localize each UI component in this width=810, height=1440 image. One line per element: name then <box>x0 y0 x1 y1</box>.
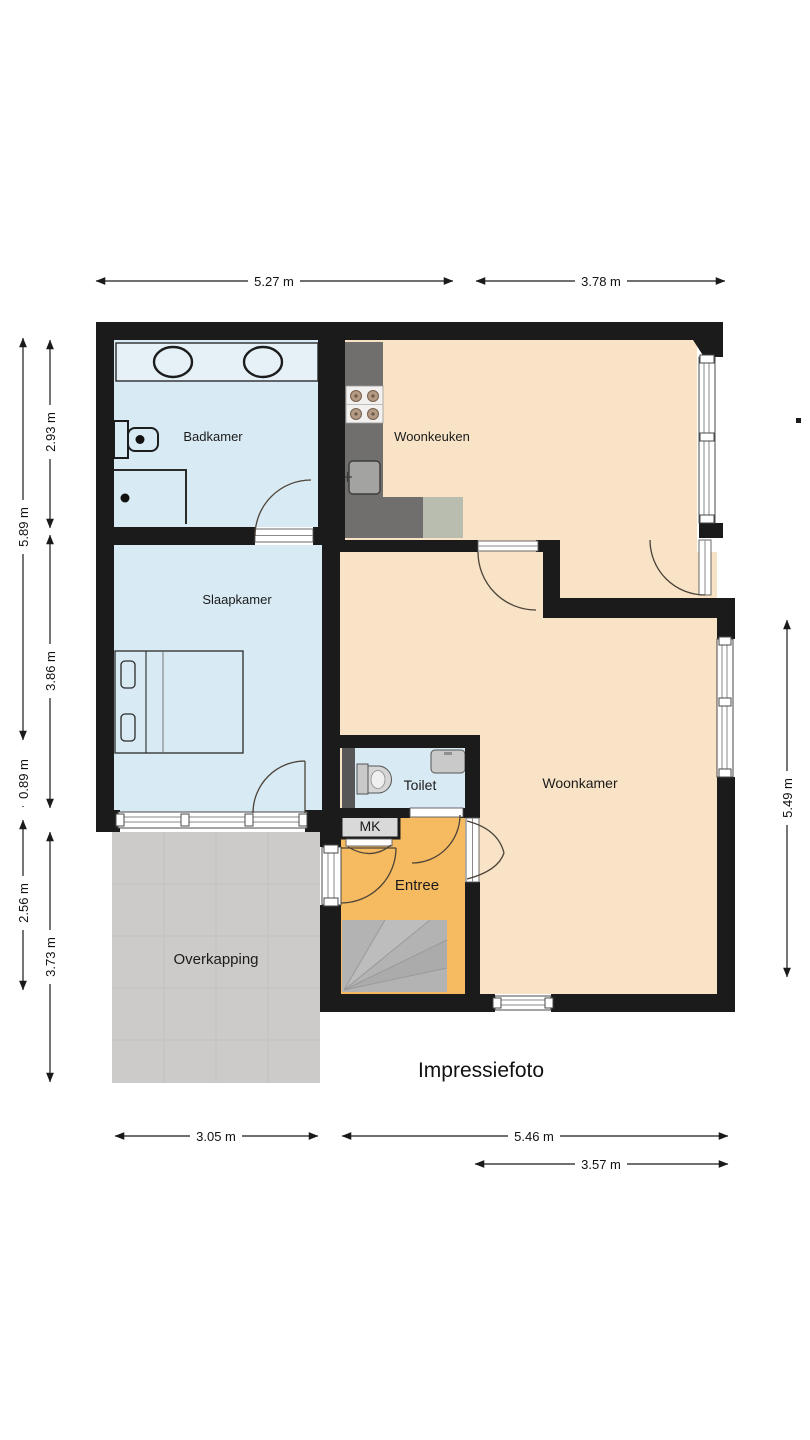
caption-impressiefoto: Impressiefoto <box>418 1059 544 1082</box>
woonkamer-bottom-window <box>493 996 553 1010</box>
wall-corner-tr <box>693 340 723 357</box>
dim-top-right-value: 3.78 m <box>581 274 621 289</box>
dim-left-outer-middle-value: 0.89 m <box>16 759 31 799</box>
dim-right-side: 5.49 m <box>779 620 795 977</box>
label-toilet: Toilet <box>404 777 437 793</box>
slaapkamer-window <box>116 812 307 828</box>
dim-bottom-right-value: 3.57 m <box>581 1157 621 1172</box>
shaft <box>342 748 355 810</box>
dim-right-side-value: 5.49 m <box>780 778 795 818</box>
kitchen-counter-bottom <box>345 497 423 538</box>
floorplan-page: Badkamer Woonkeuken Slaapkamer Toilet MK… <box>0 0 810 1440</box>
hand-basin-icon <box>431 750 465 773</box>
dim-left-inner-upper: 2.93 m <box>42 340 58 528</box>
mk-door <box>346 839 392 846</box>
stray-mark <box>796 418 801 423</box>
woonkeuken-window <box>699 355 715 523</box>
dim-left-outer-upper: 5.89 m <box>15 338 31 740</box>
dim-left-inner-lower: 3.73 m <box>42 832 58 1082</box>
dim-top-right: 3.78 m <box>476 273 725 289</box>
label-woonkeuken: Woonkeuken <box>394 429 470 444</box>
woonkamer-side-window <box>717 637 733 777</box>
label-woonkamer: Woonkamer <box>542 775 618 791</box>
dim-left-inner-lower-value: 3.73 m <box>43 937 58 977</box>
dim-left-inner-middle: 3.86 m <box>42 535 58 808</box>
label-entree: Entree <box>395 877 439 894</box>
dim-bottom-left-value: 3.05 m <box>196 1129 236 1144</box>
label-overkapping: Overkapping <box>173 951 258 968</box>
bed-icon <box>115 651 243 753</box>
dim-top-left: 5.27 m <box>96 273 453 289</box>
label-badkamer: Badkamer <box>183 429 243 444</box>
dim-left-outer-middle: 0.89 m <box>15 752 31 807</box>
dim-bottom-right: 3.57 m <box>475 1156 728 1172</box>
dim-top-left-value: 5.27 m <box>254 274 294 289</box>
wc-toilet-icon <box>357 764 392 794</box>
stairs-icon <box>342 920 447 992</box>
dim-left-inner-middle-value: 3.86 m <box>43 651 58 691</box>
dim-left-outer-lower: 2.56 m <box>15 820 31 990</box>
kitchen-sink-icon <box>343 461 380 494</box>
kitchen-appliance <box>423 497 463 538</box>
dim-left-outer-upper-value: 5.89 m <box>16 507 31 547</box>
double-washbasin-icon <box>116 343 318 381</box>
stove-icon <box>346 386 383 423</box>
dim-left-outer-lower-value: 2.56 m <box>16 883 31 923</box>
dim-bottom-middle-value: 5.46 m <box>514 1129 554 1144</box>
dim-left-inner-upper-value: 2.93 m <box>43 412 58 452</box>
label-mk: MK <box>360 818 382 834</box>
floorplan-drawing: Badkamer Woonkeuken Slaapkamer Toilet MK… <box>0 0 810 1440</box>
dim-bottom-left: 3.05 m <box>115 1128 318 1144</box>
dim-bottom-middle: 5.46 m <box>342 1128 728 1144</box>
label-slaapkamer: Slaapkamer <box>202 592 272 607</box>
